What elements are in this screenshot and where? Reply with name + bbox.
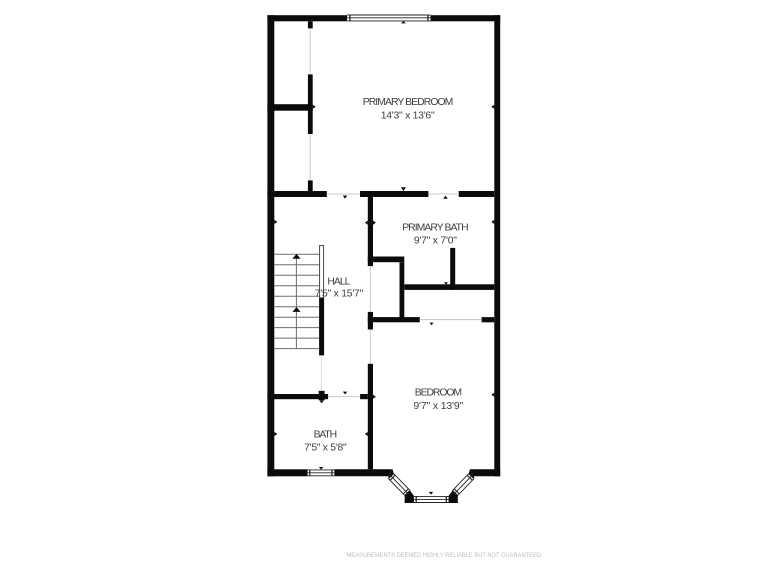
svg-text:HALL: HALL (327, 276, 350, 287)
svg-text:14'3" x 13'6": 14'3" x 13'6" (381, 111, 435, 122)
svg-text:PRIMARY BATH: PRIMARY BATH (402, 223, 468, 234)
svg-text:PRIMARY BEDROOM: PRIMARY BEDROOM (363, 97, 454, 108)
svg-text:9'7" x 13'9": 9'7" x 13'9" (413, 401, 463, 412)
svg-text:MEASUREMENTS DEEMED HIGHLY REL: MEASUREMENTS DEEMED HIGHLY RELIABLE BUT … (346, 552, 542, 559)
svg-text:BEDROOM: BEDROOM (415, 387, 462, 398)
svg-text:7'5" x 15'7": 7'5" x 15'7" (315, 289, 364, 300)
svg-text:BATH: BATH (314, 429, 338, 440)
svg-text:9'7" x 7'0": 9'7" x 7'0" (414, 236, 457, 247)
svg-text:7'5" x 5'8": 7'5" x 5'8" (304, 442, 347, 453)
